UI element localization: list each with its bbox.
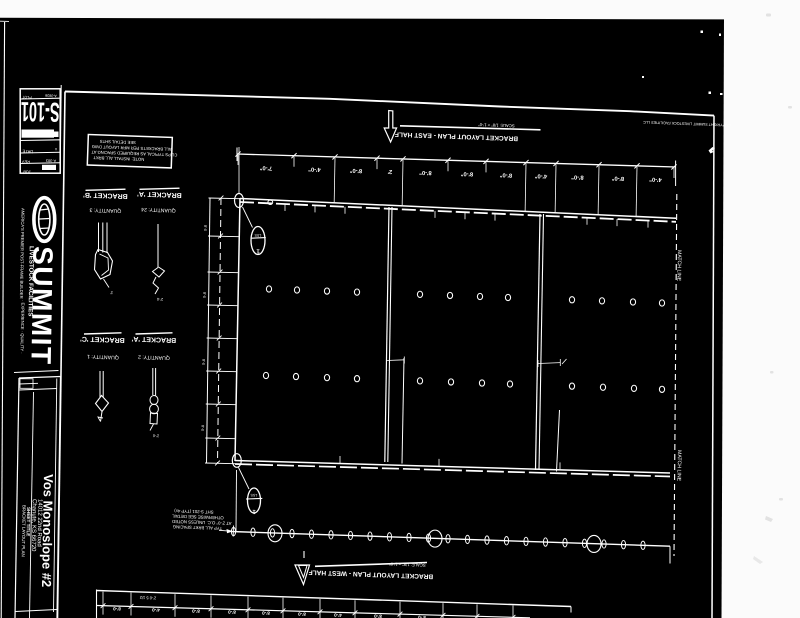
svg-text:4'-0: 4'-0 [152, 607, 160, 612]
svg-text:2'-0 5 1/2: 2'-0 5 1/2 [139, 595, 156, 601]
svg-text:8'-0: 8'-0 [201, 359, 205, 365]
svg-text:8'-0: 8'-0 [228, 609, 236, 614]
svg-text:8′-0": 8′-0" [419, 169, 432, 175]
svg-text:LSS: LSS [254, 233, 262, 237]
svg-text:4′-0": 4′-0" [534, 172, 547, 178]
svg-text:4′-0": 4′-0" [649, 176, 662, 182]
svg-text:4′-0": 4′-0" [308, 166, 321, 172]
svg-text:MATCH LINE: MATCH LINE [675, 450, 682, 482]
svg-text:#: # [55, 147, 57, 151]
svg-text:· EXPERIENCE · QUALITY ·: · EXPERIENCE · QUALITY · [20, 300, 26, 354]
svg-text:2'-0: 2'-0 [153, 433, 159, 437]
svg-text:8'-0: 8'-0 [202, 292, 206, 298]
svg-text:7′-0": 7′-0" [259, 164, 272, 170]
svg-text:REV: REV [21, 159, 30, 164]
svg-text:8'-0: 8'-0 [374, 614, 382, 618]
svg-text:LSS: LSS [250, 493, 258, 497]
svg-text:S-101: S-101 [21, 96, 60, 128]
svg-text:QUANTITY: 1: QUANTITY: 1 [87, 353, 119, 360]
svg-text:2': 2' [110, 290, 113, 294]
svg-text:8'-0: 8'-0 [203, 225, 207, 231]
svg-text:QUANTITY: 24: QUANTITY: 24 [141, 206, 176, 213]
svg-text:DATE: DATE [22, 149, 33, 154]
svg-text:8'-0: 8'-0 [200, 425, 204, 431]
svg-text:8'-0: 8'-0 [262, 610, 270, 615]
svg-text:8′-0": 8′-0" [611, 175, 624, 181]
svg-text:4'-0: 4'-0 [334, 612, 342, 617]
svg-text:MATCH LINE: MATCH LINE [675, 250, 682, 282]
svg-text:LIVESTOCK FACILITIES: LIVESTOCK FACILITIES [27, 246, 35, 316]
svg-text:A-383: A-383 [46, 158, 56, 162]
svg-text:2'-0: 2'-0 [157, 297, 163, 301]
svg-text:8′-0": 8′-0" [571, 173, 584, 179]
svg-text:BRACKET LAYOUT PLAN: BRACKET LAYOUT PLAN [21, 505, 27, 557]
svg-text:QUANTITY: 2: QUANTITY: 2 [138, 353, 170, 360]
svg-text:8'-0: 8'-0 [192, 608, 200, 613]
svg-text:JOB: JOB [23, 169, 31, 173]
svg-text:8′-0": 8′-0" [460, 170, 473, 176]
svg-text:8'-0: 8'-0 [298, 611, 306, 616]
svg-text:2': 2' [387, 168, 392, 174]
svg-text:8′-0": 8′-0" [499, 171, 512, 177]
svg-text:8'-0: 8'-0 [113, 606, 121, 611]
svg-text:QUANTITY: 3: QUANTITY: 3 [89, 206, 121, 213]
svg-text:8′-0": 8′-0" [349, 167, 362, 173]
